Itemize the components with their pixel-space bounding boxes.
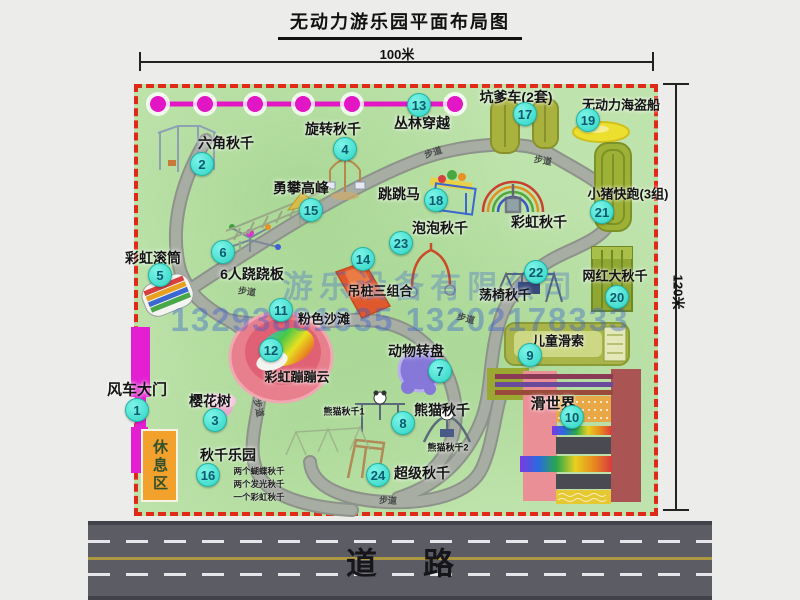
- width-dimension-label: 100米: [380, 44, 415, 63]
- right-dimension-tick-top: [663, 83, 689, 85]
- top-dimension-tick-right: [652, 52, 654, 71]
- right-dimension-tick-bottom: [663, 509, 689, 511]
- page-title: 无动力游乐园平面布局图: [278, 8, 522, 40]
- rest-area: 休息区: [141, 429, 178, 502]
- top-dimension-tick-left: [139, 52, 141, 71]
- road: 道路: [88, 521, 712, 600]
- watermark-company: 游乐设备有限公司: [282, 262, 578, 307]
- height-dimension-label: 120米: [670, 275, 689, 310]
- road-label: 道路: [300, 538, 500, 583]
- watermark-phone-numbers: 13293881635 13202178333: [171, 301, 630, 339]
